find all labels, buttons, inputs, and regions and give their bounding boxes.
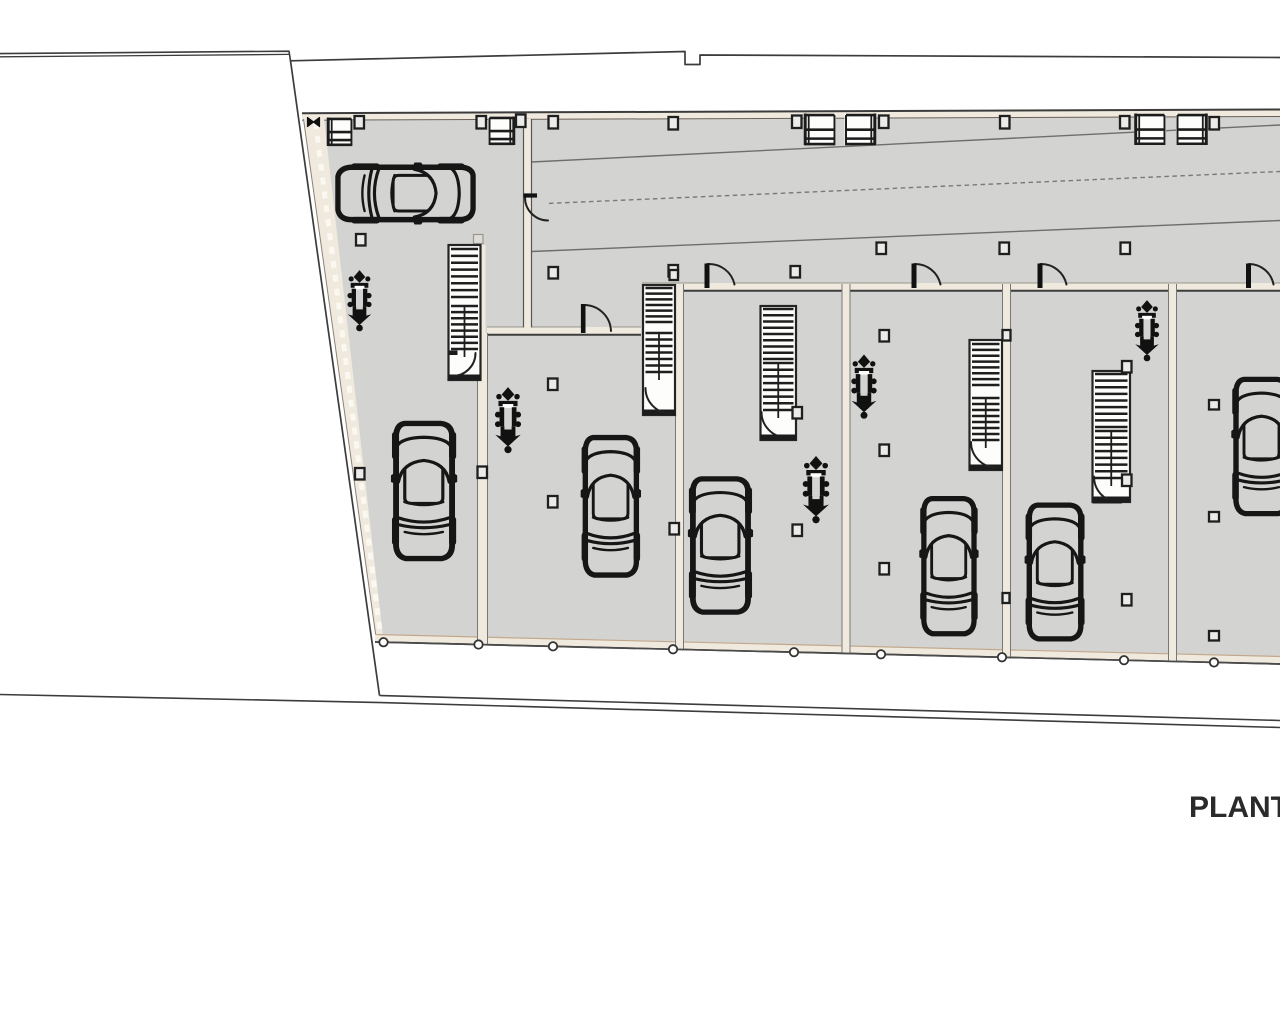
svg-text:PLANTA: PLANTA [1189,791,1280,824]
